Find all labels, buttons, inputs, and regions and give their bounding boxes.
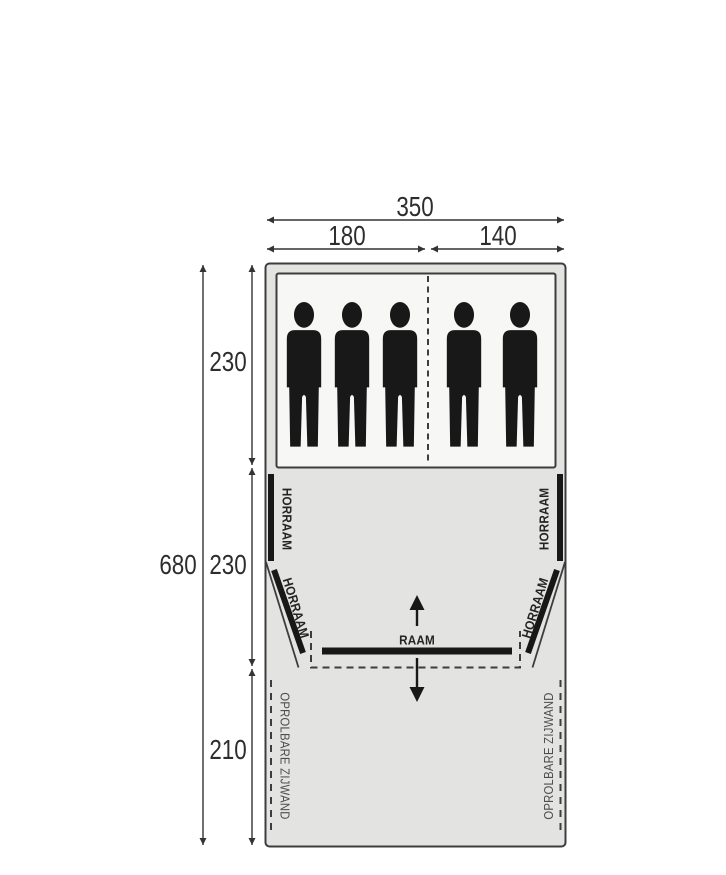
dimension-label-living-depth: 230	[209, 551, 246, 579]
person-silhouette	[443, 298, 485, 452]
dimension-label-total-width: 350	[396, 193, 433, 221]
sleeping-berths-right	[428, 298, 556, 454]
tent-floorplan-diagram: 350 180 140 680 230 230 210 HORRAAM HORR…	[0, 0, 726, 875]
dimension-label-left-width: 180	[328, 222, 365, 250]
rollup-sidewall-label-right: OPROLBARE ZIJWAND	[543, 692, 556, 819]
dimension-label-total-depth: 680	[159, 551, 196, 579]
rollup-sidewall-label-left: OPROLBARE ZIJWAND	[278, 692, 291, 819]
screen-window-label-left: HORRAAM	[281, 488, 294, 550]
dimension-label-sleeping-depth: 230	[209, 348, 246, 376]
front-window-label: RAAM	[399, 634, 435, 647]
person-silhouette	[331, 298, 373, 452]
person-silhouette	[283, 298, 325, 452]
person-silhouette	[499, 298, 541, 452]
dimension-label-canopy-depth: 210	[209, 736, 246, 764]
dimension-label-right-width: 140	[479, 222, 516, 250]
person-silhouette	[379, 298, 421, 452]
screen-window-label-right: HORRAAM	[538, 488, 551, 550]
sleeping-berths-left	[277, 298, 427, 454]
